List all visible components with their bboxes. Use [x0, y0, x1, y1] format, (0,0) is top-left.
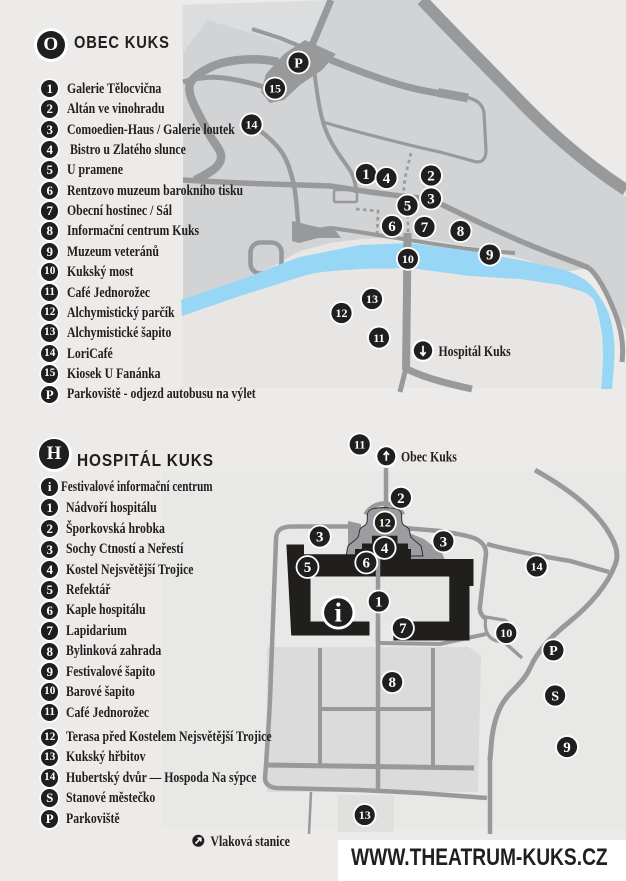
svg-text:10: 10: [402, 252, 414, 266]
svg-text:Hospitál Kuks: Hospitál Kuks: [439, 342, 511, 359]
svg-text:2: 2: [397, 491, 405, 507]
svg-text:1: 1: [362, 167, 370, 183]
svg-text:9: 9: [486, 248, 494, 264]
svg-text:4: 4: [383, 171, 391, 187]
svg-text:11: 11: [354, 438, 365, 452]
svg-text:15: 15: [269, 82, 281, 96]
svg-text:4: 4: [381, 541, 389, 557]
svg-text:9: 9: [563, 740, 571, 756]
svg-text:Vlaková stanice: Vlaková stanice: [211, 832, 290, 849]
svg-text:14: 14: [531, 560, 543, 574]
svg-text:i: i: [335, 597, 343, 627]
svg-text:P: P: [549, 644, 558, 659]
svg-text:6: 6: [363, 556, 371, 572]
svg-text:8: 8: [457, 224, 465, 240]
svg-text:6: 6: [388, 219, 396, 235]
svg-text:Obec Kuks: Obec Kuks: [401, 448, 457, 465]
svg-text:13: 13: [366, 292, 378, 306]
svg-text:P: P: [294, 56, 303, 71]
svg-text:12: 12: [379, 516, 391, 530]
svg-text:7: 7: [399, 621, 407, 637]
svg-text:13: 13: [359, 808, 371, 822]
svg-text:5: 5: [304, 560, 312, 576]
svg-text:3: 3: [316, 530, 324, 546]
svg-text:8: 8: [388, 675, 396, 691]
svg-text:11: 11: [373, 331, 384, 345]
svg-text:3: 3: [427, 192, 435, 208]
svg-text:7: 7: [421, 220, 429, 236]
svg-text:1: 1: [375, 595, 383, 611]
svg-text:12: 12: [336, 306, 348, 320]
svg-text:2: 2: [427, 169, 435, 185]
svg-text:5: 5: [404, 199, 412, 215]
svg-text:10: 10: [500, 626, 512, 640]
svg-text:14: 14: [246, 118, 258, 132]
svg-text:3: 3: [440, 534, 448, 550]
svg-text:S: S: [551, 689, 559, 704]
